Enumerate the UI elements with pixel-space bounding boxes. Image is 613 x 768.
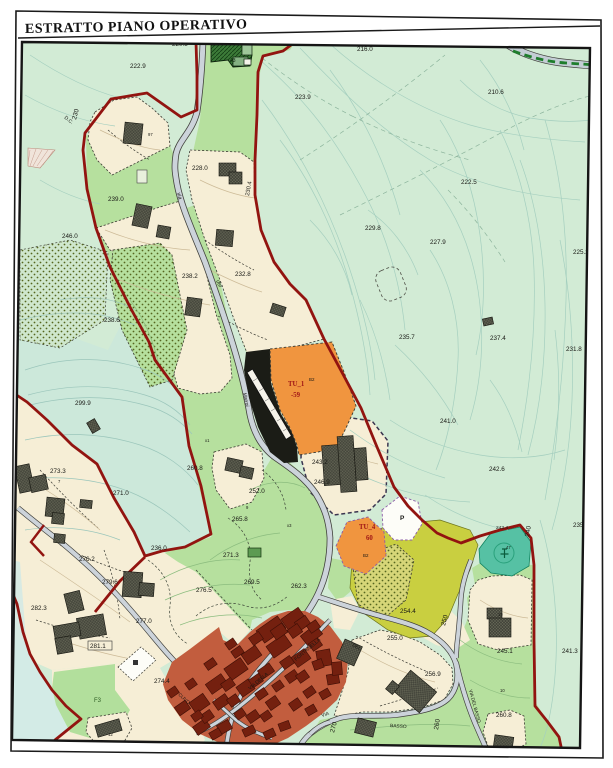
- svg-text:238.2: 238.2: [182, 273, 198, 280]
- svg-text:260.8: 260.8: [187, 465, 203, 472]
- svg-text:97: 97: [148, 132, 153, 137]
- svg-text:273.3: 273.3: [50, 468, 66, 475]
- svg-text:246.9: 246.9: [314, 479, 330, 486]
- svg-text:236.0: 236.0: [151, 545, 167, 552]
- svg-text:262.3: 262.3: [291, 583, 307, 590]
- svg-text:269.5: 269.5: [244, 579, 260, 586]
- svg-text:279.6: 279.6: [102, 579, 118, 586]
- svg-text:x1: x1: [205, 438, 210, 443]
- svg-text:241.3: 241.3: [562, 648, 578, 655]
- svg-text:254.4: 254.4: [400, 608, 416, 615]
- svg-text:223.9: 223.9: [295, 94, 311, 101]
- svg-text:260.8: 260.8: [496, 712, 512, 719]
- svg-text:BASSO: BASSO: [390, 723, 407, 730]
- svg-text:B2: B2: [309, 377, 315, 382]
- svg-text:235.7: 235.7: [399, 334, 415, 341]
- svg-text:222.5: 222.5: [461, 179, 477, 186]
- svg-text:12: 12: [108, 732, 113, 737]
- svg-text:241.0: 241.0: [440, 418, 456, 425]
- svg-text:10: 10: [500, 688, 505, 693]
- svg-text:F3: F3: [94, 698, 102, 704]
- svg-text:47: 47: [506, 545, 511, 550]
- svg-text:243.2: 243.2: [312, 459, 328, 466]
- svg-text:229.8: 229.8: [365, 225, 381, 232]
- svg-text:TU_1: TU_1: [288, 381, 305, 388]
- svg-text:282.3: 282.3: [31, 605, 47, 612]
- svg-text:281.1: 281.1: [90, 643, 106, 650]
- svg-text:243.4: 243.4: [496, 525, 508, 531]
- svg-text:228.0: 228.0: [192, 165, 208, 172]
- svg-text:276.5: 276.5: [196, 587, 212, 594]
- svg-text:242.6: 242.6: [489, 466, 505, 473]
- svg-text:276.2: 276.2: [79, 556, 95, 563]
- svg-text:271.0: 271.0: [113, 490, 129, 497]
- svg-text:239.0: 239.0: [108, 196, 124, 203]
- svg-text:238.6: 238.6: [104, 317, 120, 324]
- svg-text:277.0: 277.0: [136, 618, 152, 625]
- svg-text:60: 60: [366, 535, 373, 542]
- svg-text:-59: -59: [291, 392, 301, 399]
- svg-text:P: P: [400, 515, 405, 522]
- svg-text:246.0: 246.0: [62, 233, 78, 240]
- svg-text:252.0: 252.0: [249, 488, 265, 495]
- svg-text:274.4: 274.4: [154, 678, 170, 685]
- svg-text:299.9: 299.9: [75, 400, 91, 407]
- svg-text:19: 19: [498, 612, 503, 617]
- svg-text:237.4: 237.4: [490, 335, 506, 342]
- svg-text:43: 43: [230, 58, 236, 64]
- svg-text:TU_4: TU_4: [359, 524, 376, 531]
- svg-text:227.9: 227.9: [430, 239, 446, 246]
- svg-text:265.8: 265.8: [232, 516, 248, 523]
- svg-text:245.1: 245.1: [497, 648, 513, 655]
- svg-text:210.6: 210.6: [488, 89, 504, 96]
- svg-text:216.0: 216.0: [357, 46, 373, 53]
- svg-text:231.8: 231.8: [566, 346, 582, 353]
- svg-text:222.9: 222.9: [130, 63, 146, 70]
- svg-text:255.0: 255.0: [387, 635, 403, 642]
- svg-text:271.3: 271.3: [223, 552, 239, 559]
- svg-text:x3: x3: [287, 523, 292, 528]
- svg-text:256.9: 256.9: [425, 671, 441, 678]
- svg-text:B2: B2: [363, 553, 369, 558]
- svg-text:232.8: 232.8: [235, 271, 251, 278]
